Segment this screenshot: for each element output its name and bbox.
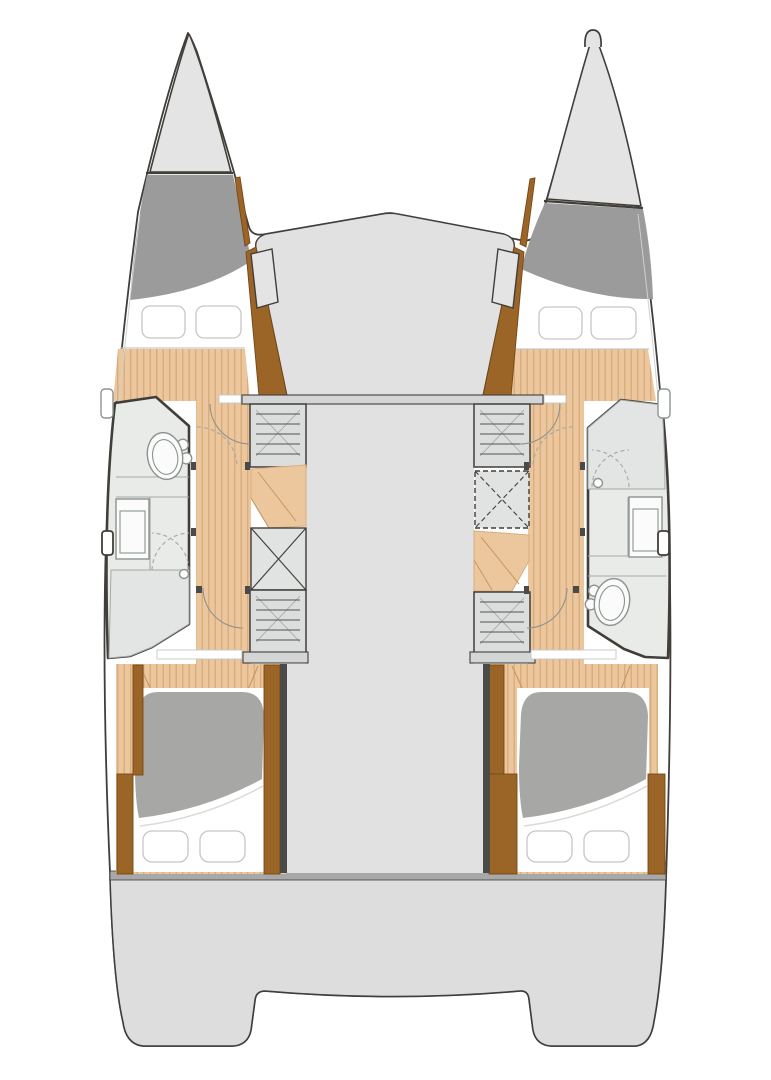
right-bow-roller-icon xyxy=(585,30,601,47)
right-aft-trim-outer-lower xyxy=(648,774,665,874)
right-porthole xyxy=(658,389,670,418)
left-side-hatch xyxy=(102,531,113,555)
left-aft-trim-inner xyxy=(264,665,280,874)
right-aft-trim-inner-upper xyxy=(489,665,504,775)
right-aft-pillow-1 xyxy=(527,831,572,862)
bridge-deck-front xyxy=(256,213,515,396)
floor-plan-image xyxy=(0,0,771,1080)
right-aft-pillow-2 xyxy=(584,831,629,862)
left-drawer-unit-bottom xyxy=(250,590,306,653)
left-aft-pillow-2 xyxy=(200,831,245,862)
right-aft-cabin-wall xyxy=(483,664,490,873)
right-shower-drain xyxy=(594,479,603,488)
right-fwd-pillow-2 xyxy=(591,307,636,339)
left-aft-cabin-wall xyxy=(280,664,287,873)
central-corridor-lower xyxy=(287,664,483,873)
right-fwd-pillow-1 xyxy=(539,307,582,339)
left-forward-sole xyxy=(113,349,250,401)
cabinet-header-bar xyxy=(242,395,543,404)
left-fwd-pillow-1 xyxy=(142,306,185,338)
right-vanity-counter xyxy=(629,497,662,557)
stern-platform xyxy=(110,863,666,1046)
right-aft-threshold xyxy=(531,650,616,659)
left-vanity-counter xyxy=(116,499,149,559)
left-walkway-sole xyxy=(196,401,251,664)
left-porthole xyxy=(101,389,113,418)
left-aft-trim-outer-lower xyxy=(117,774,133,874)
right-drawer-unit-top xyxy=(474,404,530,467)
cabinet-top-bar xyxy=(219,395,566,404)
right-side-hatch xyxy=(658,531,669,555)
right-aft-trim-inner-lower xyxy=(489,774,517,874)
left-drawer-unit-top xyxy=(250,404,306,467)
central-corridor-upper xyxy=(306,396,474,666)
left-aft-cabin xyxy=(117,664,287,874)
right-top-shelf xyxy=(544,395,566,403)
left-top-shelf xyxy=(219,395,241,403)
left-aft-trim-outer-upper xyxy=(133,665,143,775)
left-vanity xyxy=(116,499,149,559)
right-cabinet-footer-bar xyxy=(470,652,535,663)
left-aft-pillow-1 xyxy=(143,831,188,862)
right-vanity xyxy=(629,497,662,557)
catamaran-floor-plan xyxy=(0,0,771,1080)
left-aft-threshold xyxy=(157,650,242,659)
left-cabinet-footer-bar xyxy=(243,652,308,663)
left-fwd-pillow-2 xyxy=(196,306,241,338)
right-forward-sole xyxy=(502,349,656,401)
left-shower-drain xyxy=(180,570,189,579)
right-bow-tip xyxy=(547,36,641,206)
stern-deck xyxy=(110,877,666,1046)
left-bow-tip xyxy=(150,35,231,173)
